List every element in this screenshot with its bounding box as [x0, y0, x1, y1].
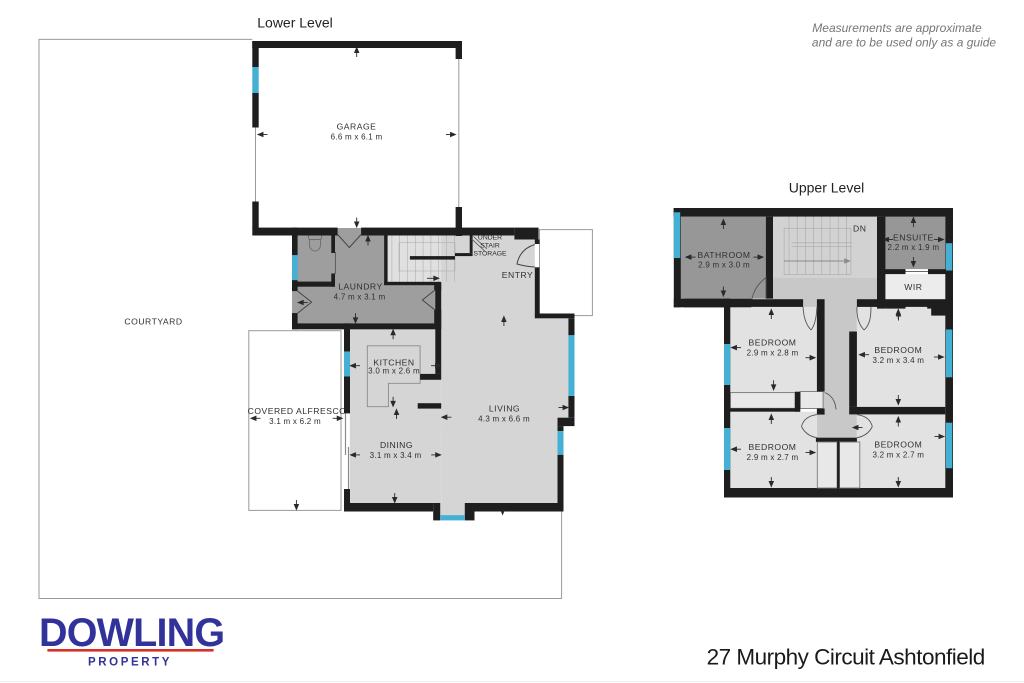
svg-text:3.0 m x 2.6 m: 3.0 m x 2.6 m: [368, 367, 420, 376]
svg-text:BEDROOM: BEDROOM: [874, 345, 922, 355]
svg-text:UNDER: UNDER: [478, 235, 502, 242]
svg-text:WIR: WIR: [904, 282, 922, 292]
svg-text:4.7 m x 3.1 m: 4.7 m x 3.1 m: [334, 293, 386, 302]
svg-text:BEDROOM: BEDROOM: [749, 338, 797, 348]
svg-text:DOWLING: DOWLING: [39, 611, 224, 655]
svg-text:27 Murphy Circuit Ashtonfield: 27 Murphy Circuit Ashtonfield: [707, 645, 985, 670]
svg-text:DINING: DINING: [380, 440, 413, 450]
svg-text:2.9 m x 2.7 m: 2.9 m x 2.7 m: [747, 453, 799, 462]
svg-text:BEDROOM: BEDROOM: [749, 442, 797, 452]
svg-text:COVERED ALFRESCO: COVERED ALFRESCO: [248, 406, 347, 416]
svg-text:Upper Level: Upper Level: [789, 180, 865, 196]
svg-text:Measurements are approximate: Measurements are approximate: [812, 21, 982, 35]
svg-text:STORAGE: STORAGE: [473, 251, 507, 258]
svg-text:6.6 m x 6.1 m: 6.6 m x 6.1 m: [331, 133, 383, 142]
svg-text:ENSUITE: ENSUITE: [893, 233, 934, 243]
svg-text:2.9 m x 3.0 m: 2.9 m x 3.0 m: [698, 261, 750, 270]
svg-text:COURTYARD: COURTYARD: [124, 317, 182, 327]
svg-text:2.9 m x 2.8 m: 2.9 m x 2.8 m: [747, 349, 799, 358]
svg-text:LIVING: LIVING: [489, 404, 520, 414]
svg-text:LAUNDRY: LAUNDRY: [338, 282, 382, 292]
svg-text:3.1 m x 6.2 m: 3.1 m x 6.2 m: [269, 417, 321, 426]
svg-text:GARAGE: GARAGE: [337, 122, 377, 132]
svg-text:3.1 m x 3.4 m: 3.1 m x 3.4 m: [370, 451, 422, 460]
svg-text:PROPERTY: PROPERTY: [88, 657, 172, 669]
svg-text:BEDROOM: BEDROOM: [874, 440, 922, 450]
svg-text:3.2 m x 3.4 m: 3.2 m x 3.4 m: [872, 356, 924, 365]
svg-text:STAIR: STAIR: [480, 243, 500, 250]
svg-text:BATHROOM: BATHROOM: [697, 250, 750, 260]
svg-text:DN: DN: [853, 224, 866, 234]
svg-text:and are to be used only as a g: and are to be used only as a guide: [812, 36, 996, 50]
svg-text:Lower Level: Lower Level: [257, 15, 333, 31]
svg-text:2.2 m x 1.9 m: 2.2 m x 1.9 m: [888, 243, 940, 252]
svg-text:3.2 m x 2.7 m: 3.2 m x 2.7 m: [872, 451, 924, 460]
svg-text:ENTRY: ENTRY: [502, 270, 533, 280]
svg-text:4.3 m x 6.6 m: 4.3 m x 6.6 m: [478, 415, 530, 424]
